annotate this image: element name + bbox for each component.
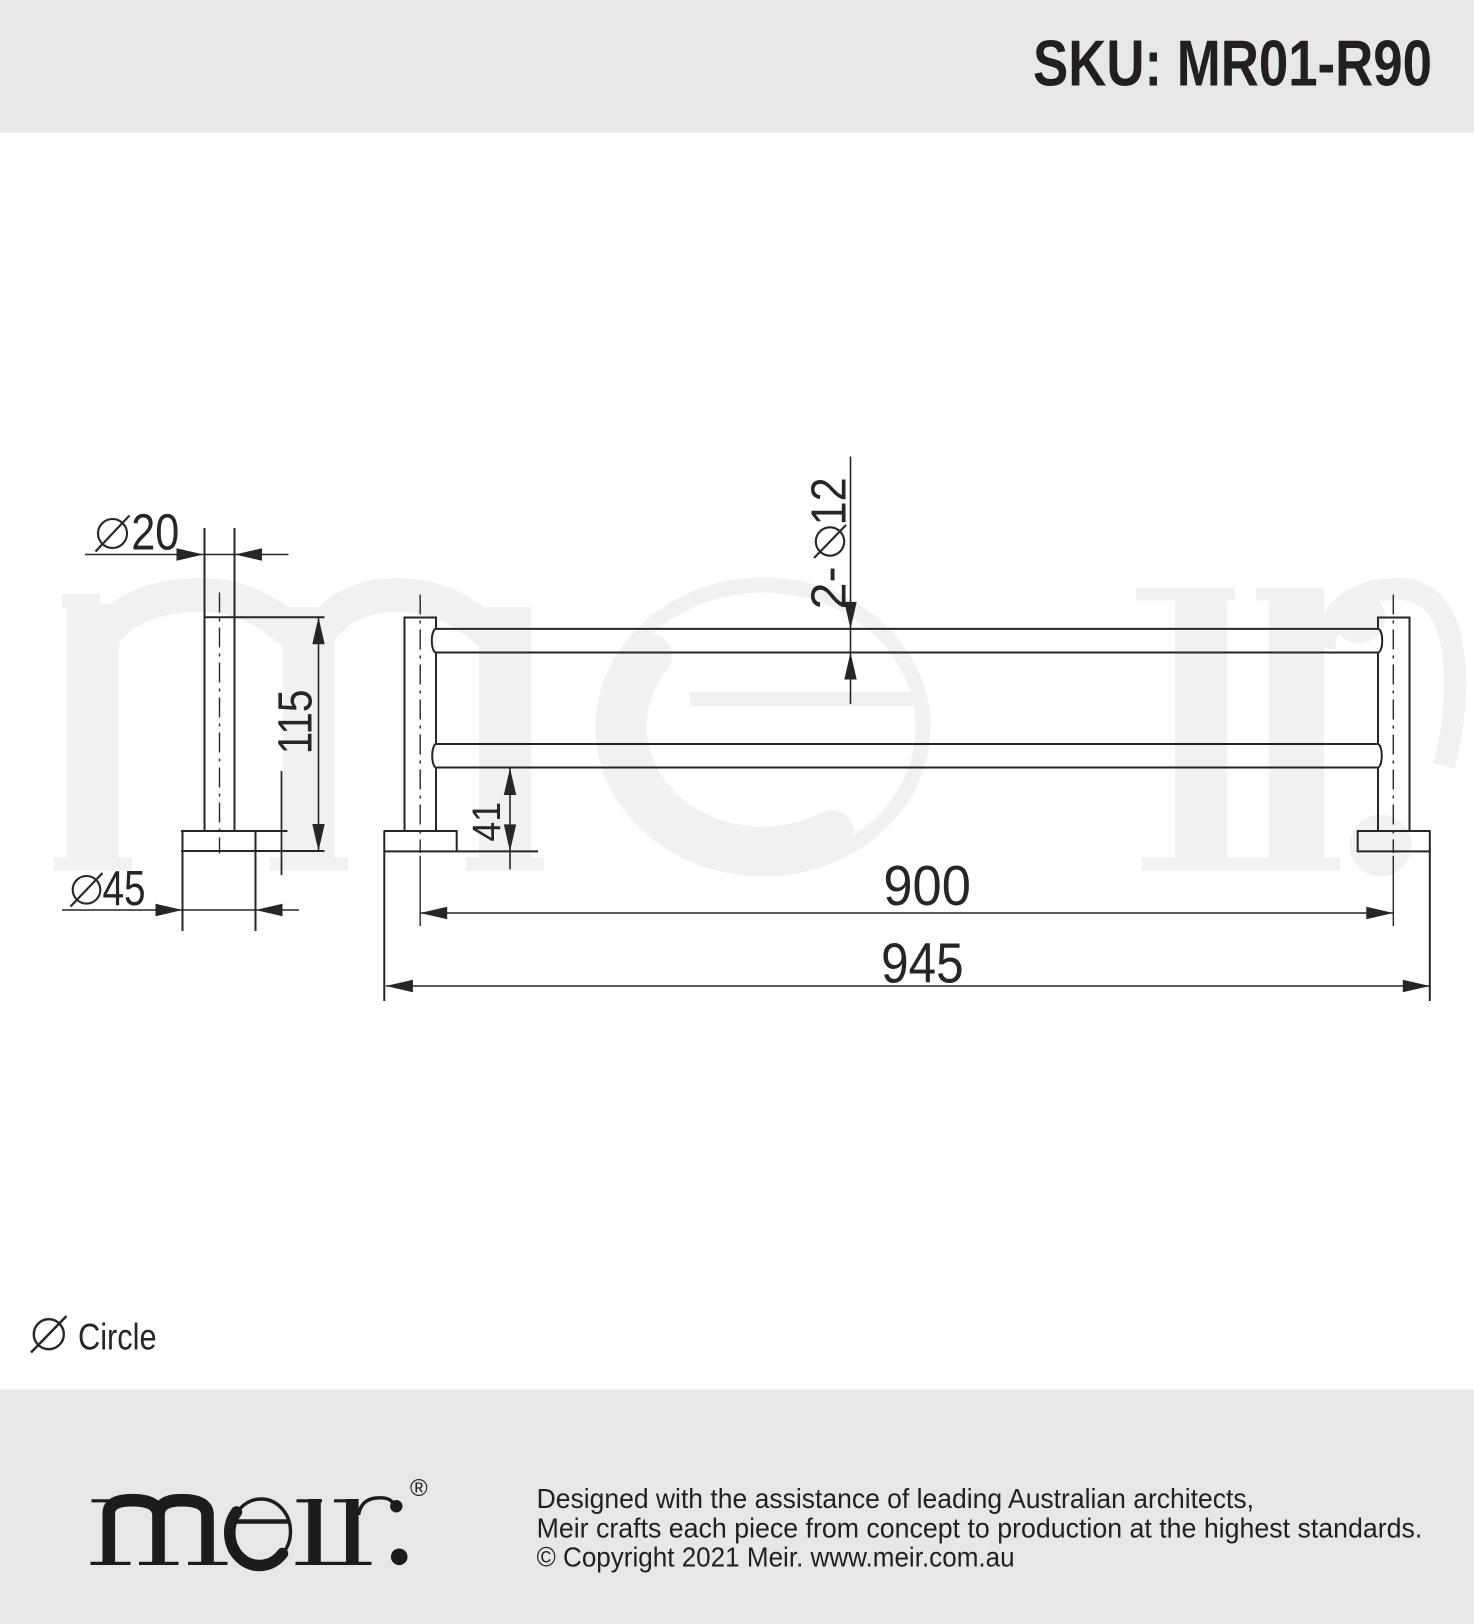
svg-text:945: 945: [881, 931, 964, 995]
svg-text:®: ®: [410, 1475, 428, 1502]
svg-text:2-: 2-: [803, 566, 857, 609]
svg-text:Meir crafts each piece from co: Meir crafts each piece from concept to p…: [537, 1513, 1423, 1544]
svg-text:Designed with the assistance o: Designed with the assistance of leading …: [537, 1483, 1254, 1514]
svg-text:900: 900: [883, 855, 971, 918]
svg-text:41: 41: [465, 802, 509, 842]
svg-text:12: 12: [803, 477, 857, 525]
svg-text:45: 45: [103, 862, 146, 916]
svg-text:© Copyright 2021 Meir. www.mei: © Copyright 2021 Meir. www.meir.com.au: [537, 1542, 1015, 1573]
svg-text:SKU: MR01-R90: SKU: MR01-R90: [1033, 27, 1432, 100]
svg-text:20: 20: [131, 503, 179, 560]
svg-text:115: 115: [268, 690, 322, 755]
svg-text:Circle: Circle: [78, 1316, 157, 1358]
